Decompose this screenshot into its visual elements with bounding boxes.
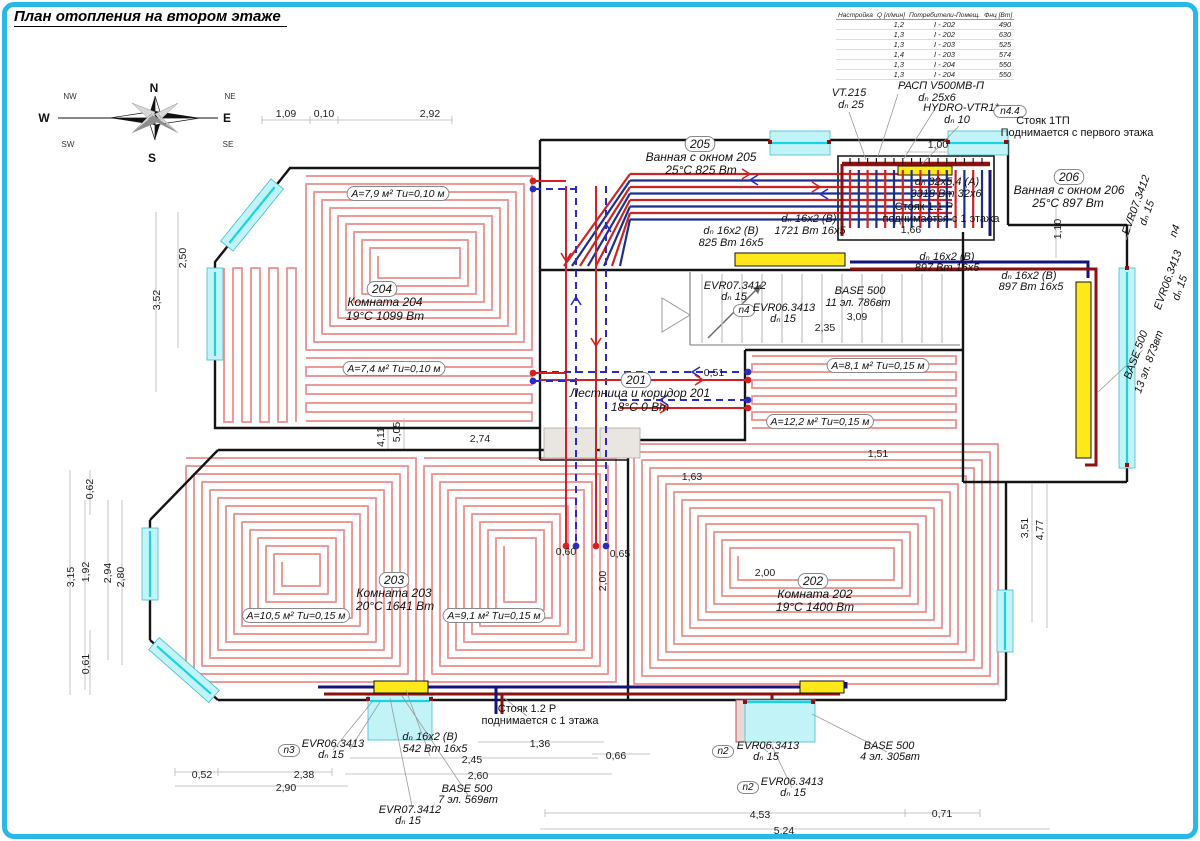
plan-label-85: А=7,4 м² Tи=0,10 м xyxy=(346,363,440,375)
plan-label-24: 0,65 xyxy=(610,548,631,560)
plan-label-15: 3,51 xyxy=(1019,518,1031,539)
plan-label-64: BASE 500 xyxy=(835,285,887,297)
plan-label-77: 18°C 0 Вт xyxy=(611,400,669,414)
plan-label-37: 5,24 xyxy=(774,825,795,837)
plan-label-106: n2 xyxy=(742,782,754,793)
plan-label-38: VT.215 xyxy=(832,87,867,99)
plan-label-93: 542 Вт 16x5 xyxy=(403,743,469,755)
bundle-fan-pipe xyxy=(572,181,630,267)
plan-label-50: поднимается с 1 этажа xyxy=(883,213,1001,225)
plan-label-98: 7 эл. 569вт xyxy=(438,794,498,806)
plan-label-11: 1,92 xyxy=(80,562,92,583)
pipes xyxy=(318,181,1096,714)
plan-label-2: 2,92 xyxy=(420,108,441,120)
plan-label-72: 204 xyxy=(371,282,392,296)
plan-label-84: А=7,9 м² Tи=0,10 м xyxy=(350,188,444,200)
plan-label-91: поднимается с 1 этажа xyxy=(482,715,600,727)
radiator-base500-206 xyxy=(1076,282,1091,458)
plan-label-79: Комната 202 xyxy=(777,587,852,601)
plan-label-75: 201 xyxy=(625,373,646,387)
plan-label-34: 2,60 xyxy=(468,770,489,782)
plan-label-39: dₙ 25 xyxy=(838,99,865,111)
plan-label-108: dₙ 15 xyxy=(780,787,807,799)
heating-loop xyxy=(424,458,616,682)
plan-label-70: Ванная с окном 206 xyxy=(1014,183,1125,197)
plan-label-9: 0,62 xyxy=(84,479,96,500)
plan-label-35: 4,53 xyxy=(750,809,771,821)
plan-label-27: 1,51 xyxy=(868,448,889,460)
plan-label-61: n4 xyxy=(738,305,750,316)
plan-label-1: 0,10 xyxy=(314,108,335,120)
settings-table-head: НастройкаQ [л/мин]Потребители-Помещ.Фнц … xyxy=(836,12,1014,20)
plan-label-63: dₙ 15 xyxy=(770,313,797,325)
plan-label-66: 205 xyxy=(689,137,710,151)
settings-table: НастройкаQ [л/мин]Потребители-Помещ.Фнц … xyxy=(836,12,1014,80)
compass-sw: SW xyxy=(62,140,75,149)
settings-col-2: Потребители-Помещ. xyxy=(907,12,982,20)
plan-label-68: 25°C 825 Вт xyxy=(664,163,737,177)
plan-label-40: РАСП V500МВ-П xyxy=(898,80,984,92)
heating-loop xyxy=(186,458,416,682)
plan-label-100: dₙ 15 xyxy=(395,815,422,827)
plan-label-14: 0,61 xyxy=(80,654,92,675)
plan-label-23: 0,60 xyxy=(556,546,577,558)
plan-label-25: 2,00 xyxy=(597,571,609,592)
plan-label-67: Ванная с окном 205 xyxy=(646,150,757,164)
plan-label-82: Комната 203 xyxy=(356,586,431,600)
plan-label-4: 2,74 xyxy=(470,433,491,445)
compass-ne: NE xyxy=(224,92,235,101)
plan-label-32: 0,66 xyxy=(606,750,627,762)
plan-label-94: n3 xyxy=(283,745,295,756)
plan-label-83: 20°C 1641 Вт xyxy=(355,599,434,613)
settings-col-1: Q [л/мин] xyxy=(875,12,907,20)
plan-label-10: 3,15 xyxy=(65,567,77,588)
plan-label-17: 1,10 xyxy=(1052,219,1064,240)
plan-label-92: dₙ 16x2 (В) xyxy=(402,731,457,743)
plan-label-18: 1,66 xyxy=(901,224,922,236)
plan-label-36: 0,71 xyxy=(932,808,953,820)
settings-row: 1,4I - 203574 xyxy=(836,50,1014,60)
plan-label-22: 1,63 xyxy=(682,471,703,483)
plan-label-21: 0,51 xyxy=(704,367,725,379)
plan-label-7: 2,50 xyxy=(177,248,189,269)
plan-label-28: 0,52 xyxy=(192,769,213,781)
plan-label-87: А=9,1 м² Tи=0,15 м xyxy=(446,610,540,622)
plan-label-58: 897 Вт 16x5 xyxy=(999,281,1065,293)
plan-label-52: 825 Вт 16x5 xyxy=(699,237,765,249)
radiator-base500-203 xyxy=(374,681,428,693)
plan-label-5: 4,11 xyxy=(375,427,387,447)
plan-label-71: 25°C 897 Вт xyxy=(1031,196,1104,210)
settings-row: 1,2I - 202490 xyxy=(836,20,1014,30)
plan-label-51: dₙ 16x2 (В) xyxy=(703,225,758,237)
plan-label-105: 4 эл. 305вт xyxy=(860,751,920,763)
plan-label-78: 202 xyxy=(802,574,823,588)
compass-nw: NW xyxy=(63,92,77,101)
plan-label-56: 897 Вт 16x5 xyxy=(915,262,981,274)
plan-label-19: 2,35 xyxy=(815,322,836,334)
settings-col-0: Настройка xyxy=(836,12,875,20)
compass-rose: N S W E NW NE SW SE xyxy=(38,81,235,165)
plan-label-29: 2,38 xyxy=(294,769,315,781)
plan-label-26: 2,00 xyxy=(755,567,776,579)
settings-row: 1,3I - 204550 xyxy=(836,60,1014,70)
radiator-base500-205 xyxy=(735,253,845,266)
plan-label-6: 5,05 xyxy=(391,422,403,443)
plan-label-86: А=10,5 м² Tи=0,15 м xyxy=(245,610,345,622)
plan-label-103: dₙ 15 xyxy=(753,751,780,763)
plan-label-54: 1721 Вт 16x5 xyxy=(775,225,847,237)
settings-col-3: Фнц [Вт] xyxy=(982,12,1014,20)
heating-loop xyxy=(306,176,532,350)
radiator-base500-202 xyxy=(800,681,844,693)
settings-row: 1,3I - 203525 xyxy=(836,40,1014,50)
heating-loop xyxy=(224,268,296,422)
plan-label-101: n2 xyxy=(717,746,729,757)
compass-se: SE xyxy=(223,140,234,149)
floor-plan-canvas: N S W E NW NE SW SE xyxy=(0,0,1200,841)
plan-label-69: 206 xyxy=(1058,170,1079,184)
plan-label-81: 203 xyxy=(383,573,404,587)
compass-w: W xyxy=(38,111,50,125)
plan-label-0: 1,09 xyxy=(276,108,297,120)
plan-label-111: n4 xyxy=(1167,223,1182,239)
settings-table-body: 1,2I - 2024901,3I - 2026301,3I - 2035251… xyxy=(836,20,1014,80)
plan-label-89: А=12,2 м² Tи=0,15 м xyxy=(769,416,869,428)
plan-label-48: 3318 Вт 32x6 xyxy=(911,188,983,200)
settings-row: 1,3I - 202630 xyxy=(836,30,1014,40)
plan-label-16: 4,77 xyxy=(1034,520,1046,541)
plan-label-88: А=8,1 м² Tи=0,15 м xyxy=(830,360,924,372)
plan-label-33: 2,45 xyxy=(462,754,483,766)
plan-label-13: 2,80 xyxy=(115,567,127,588)
plan-label-20: 3,09 xyxy=(847,311,868,323)
plan-label-43: dₙ 10 xyxy=(944,114,971,126)
plan-label-74: 19°C 1099 Вт xyxy=(346,309,424,323)
drawing-title: План отопления на втором этаже xyxy=(14,8,287,27)
plan-label-60: dₙ 15 xyxy=(721,291,748,303)
plan-label-30: 2,90 xyxy=(276,782,297,794)
plan-label-53: dₙ 16x2 (В) xyxy=(781,213,836,225)
plan-label-8: 3,52 xyxy=(151,290,163,311)
plan-label-80: 19°C 1400 Вт xyxy=(776,600,854,614)
plan-label-12: 2,94 xyxy=(102,563,114,584)
plan-label-49: Стояк 1.1 Р xyxy=(895,201,954,213)
plan-label-46: Поднимается с первого этажа xyxy=(1001,127,1155,139)
plan-label-45: Стояк 1ТП xyxy=(1016,115,1070,127)
plan-label-90: Стояк 1.2 Р xyxy=(498,703,557,715)
compass-s: S xyxy=(148,151,156,165)
settings-row: 1,3I - 204550 xyxy=(836,70,1014,80)
plan-label-65: 11 эл. 786вт xyxy=(825,297,890,309)
plan-label-3: 1,00 xyxy=(928,139,949,151)
compass-e: E xyxy=(223,111,231,125)
plan-label-31: 1,36 xyxy=(530,738,551,750)
plan-label-73: Комната 204 xyxy=(347,295,422,309)
plan-label-42: HYDRO-VTR1* xyxy=(923,102,1000,114)
plan-label-96: dₙ 15 xyxy=(318,749,345,761)
plan-label-76: Лестница и коридор 201 xyxy=(569,386,710,400)
compass-n: N xyxy=(150,81,159,95)
plan-label-47: dₙ 32x5,4 (А) xyxy=(915,176,980,188)
